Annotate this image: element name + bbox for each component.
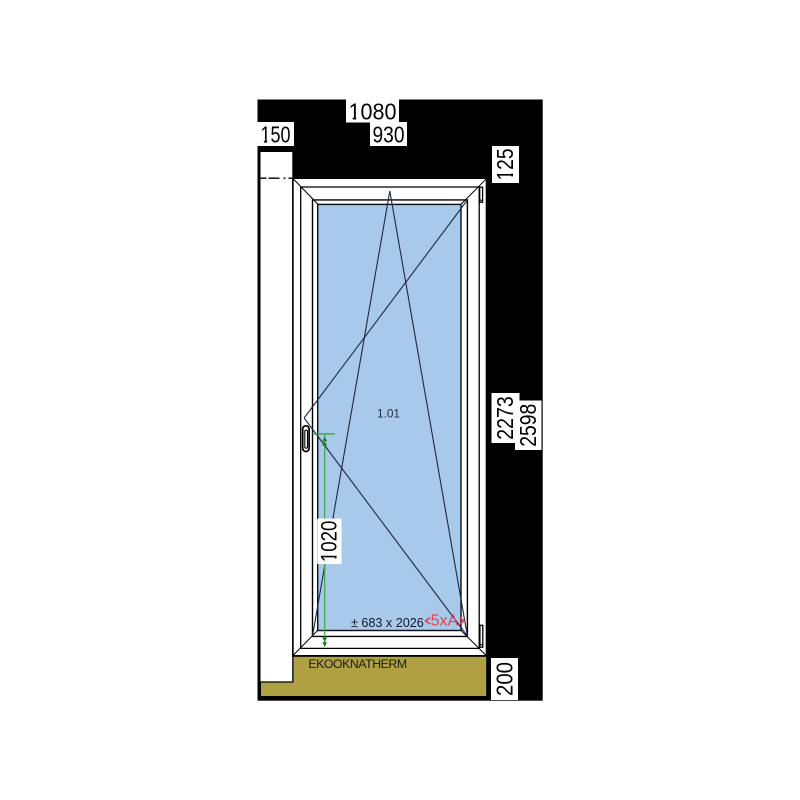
- svg-text:2598: 2598: [515, 404, 541, 447]
- svg-text:930: 930: [373, 122, 405, 148]
- svg-text:150: 150: [261, 122, 291, 148]
- svg-text:200: 200: [492, 662, 518, 696]
- svg-text:± 683 x 2026: ± 683 x 2026: [351, 616, 424, 630]
- svg-text:5xA: 5xA: [431, 613, 459, 630]
- svg-text:1020: 1020: [316, 521, 341, 563]
- svg-text:EKOOKNATHERM: EKOOKNATHERM: [308, 657, 406, 671]
- svg-text:125: 125: [492, 149, 518, 181]
- svg-text:1.01: 1.01: [377, 406, 400, 420]
